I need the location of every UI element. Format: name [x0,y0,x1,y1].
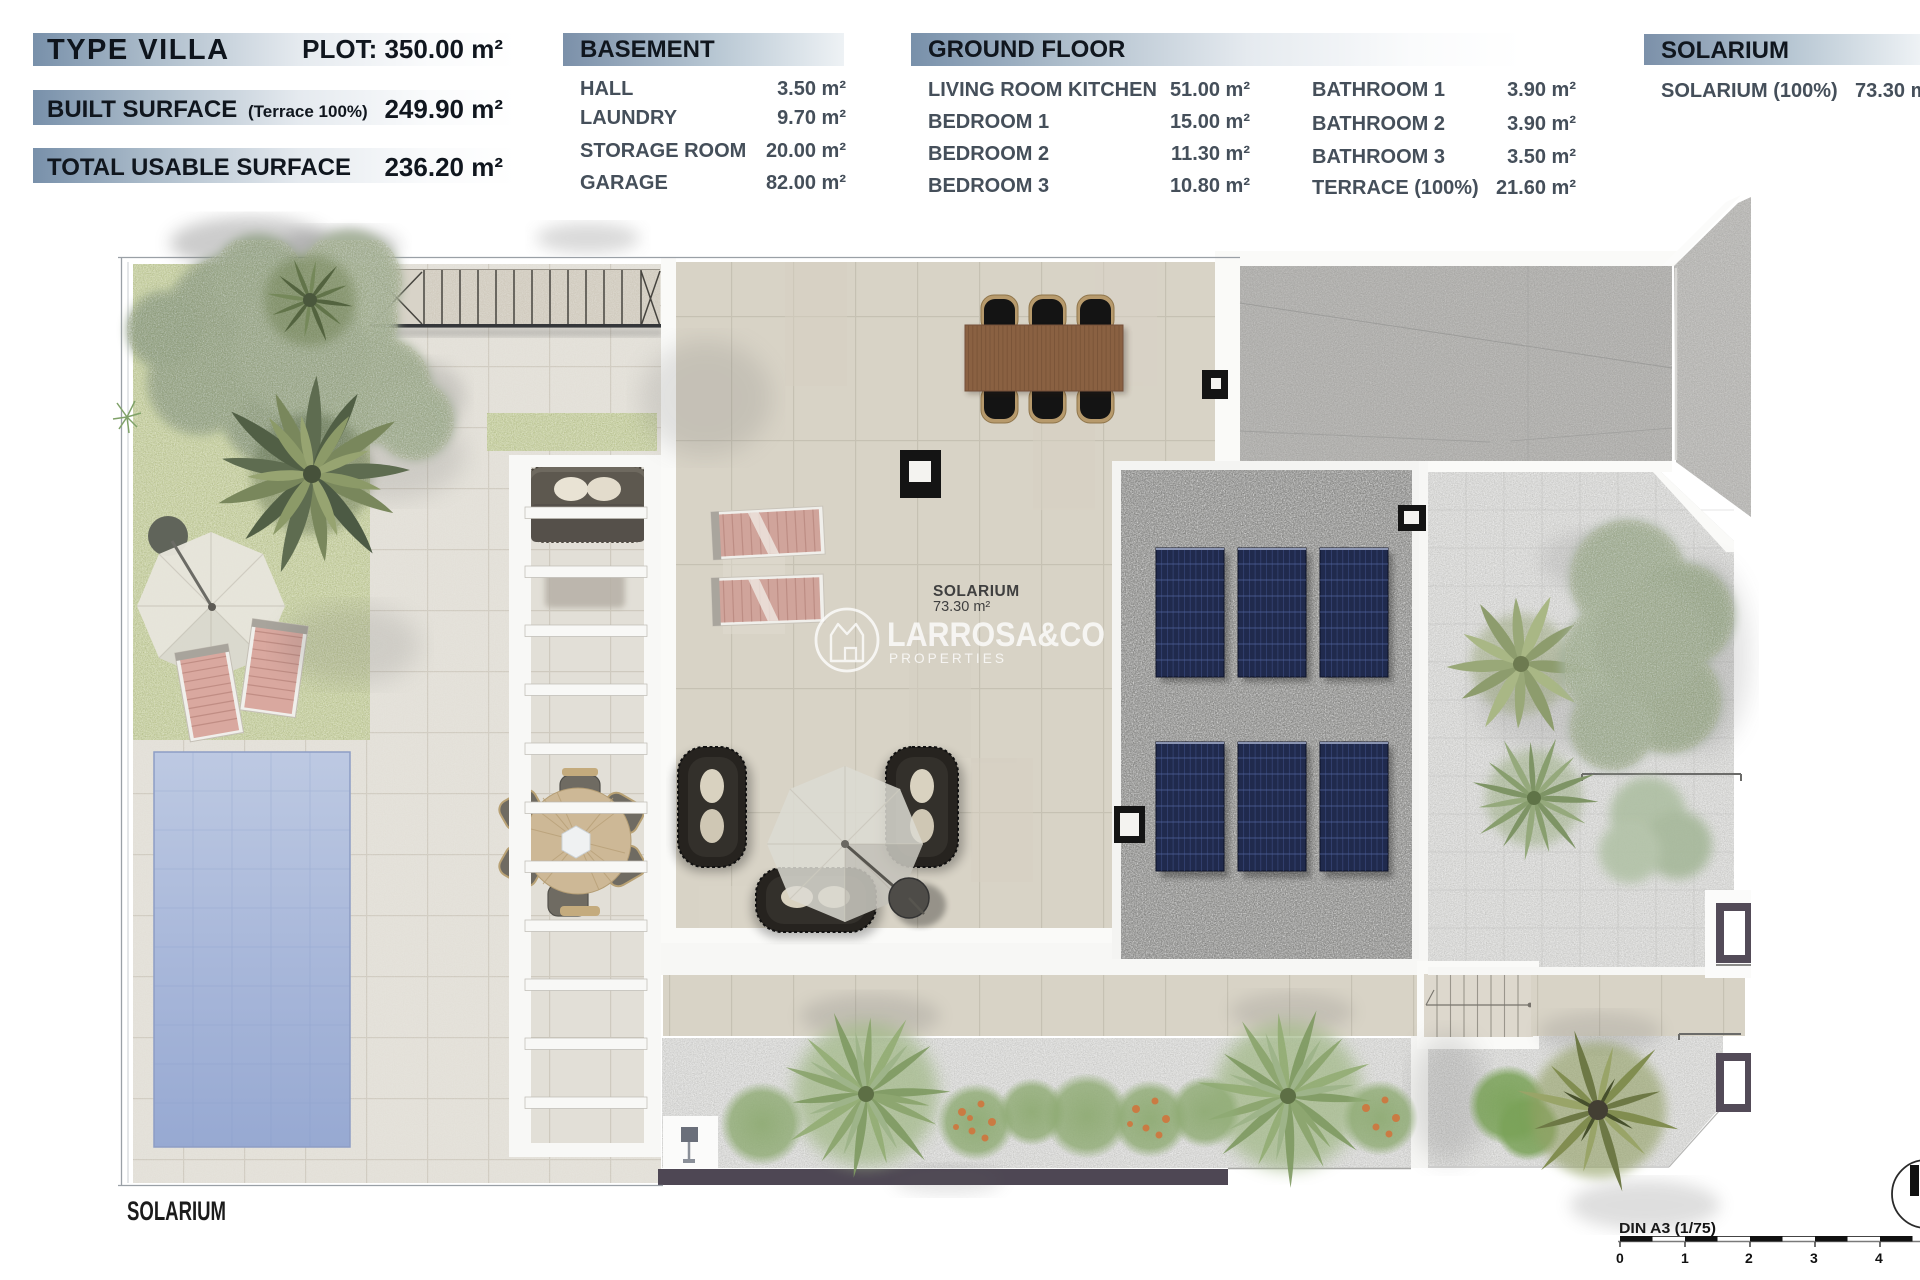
svg-text:2: 2 [1745,1250,1753,1266]
svg-text:LARROSA&CO: LARROSA&CO [887,616,1105,654]
svg-text:21.60 m²: 21.60 m² [1496,177,1576,199]
svg-text:BATHROOM 2: BATHROOM 2 [1312,113,1445,135]
svg-text:11.30 m²: 11.30 m² [1171,143,1250,165]
svg-text:SOLARIUM: SOLARIUM [933,583,1020,600]
svg-text:1: 1 [1681,1250,1689,1266]
svg-text:SOLARIUM (100%): SOLARIUM (100%) [1661,80,1838,102]
svg-text:BUILT SURFACE: BUILT SURFACE [47,96,237,123]
svg-text:PROPERTIES: PROPERTIES [889,651,1007,666]
svg-text:BATHROOM 3: BATHROOM 3 [1312,146,1445,168]
svg-text:TOTAL USABLE SURFACE: TOTAL USABLE SURFACE [47,154,351,181]
svg-text:0: 0 [1616,1250,1624,1266]
svg-text:236.20 m²: 236.20 m² [384,152,503,182]
svg-text:LAUNDRY: LAUNDRY [580,107,678,129]
svg-text:15.00 m²: 15.00 m² [1170,111,1250,133]
svg-text:3.90 m²: 3.90 m² [1507,113,1576,135]
svg-text:3.50 m²: 3.50 m² [777,78,846,100]
svg-text:BEDROOM 2: BEDROOM 2 [928,143,1049,165]
svg-text:TYPE VILLA: TYPE VILLA [47,34,230,66]
svg-text:HALL: HALL [580,78,633,100]
svg-text:3: 3 [1810,1250,1818,1266]
svg-text:BEDROOM 3: BEDROOM 3 [928,175,1049,197]
svg-text:249.90 m²: 249.90 m² [384,94,503,124]
svg-text:TERRACE (100%): TERRACE (100%) [1312,177,1479,199]
svg-text:3.50 m²: 3.50 m² [1507,146,1576,168]
svg-text:(Terrace 100%): (Terrace 100%) [248,102,368,121]
svg-text:51.00 m²: 51.00 m² [1170,79,1250,101]
svg-text:BATHROOM 1: BATHROOM 1 [1312,79,1445,101]
svg-text:4: 4 [1875,1250,1883,1266]
svg-text:73.30 m²: 73.30 m² [933,599,990,615]
svg-text:3.90 m²: 3.90 m² [1507,79,1576,101]
svg-text:SOLARIUM: SOLARIUM [1661,37,1789,64]
svg-text:LIVING ROOM KITCHEN: LIVING ROOM KITCHEN [928,79,1157,101]
svg-text:GROUND FLOOR: GROUND FLOOR [928,36,1125,63]
svg-text:STORAGE ROOM: STORAGE ROOM [580,140,746,162]
svg-text:73.30 m²: 73.30 m² [1855,80,1920,102]
svg-text:BASEMENT: BASEMENT [580,36,715,63]
svg-text:SOLARIUM: SOLARIUM [127,1196,226,1226]
svg-text:82.00 m²: 82.00 m² [766,172,846,194]
svg-text:BEDROOM 1: BEDROOM 1 [928,111,1049,133]
svg-text:PLOT: 350.00 m²: PLOT: 350.00 m² [302,34,503,64]
svg-text:20.00 m²: 20.00 m² [766,140,846,162]
svg-text:GARAGE: GARAGE [580,172,668,194]
svg-text:10.80 m²: 10.80 m² [1170,175,1250,197]
svg-text:9.70 m²: 9.70 m² [777,107,846,129]
